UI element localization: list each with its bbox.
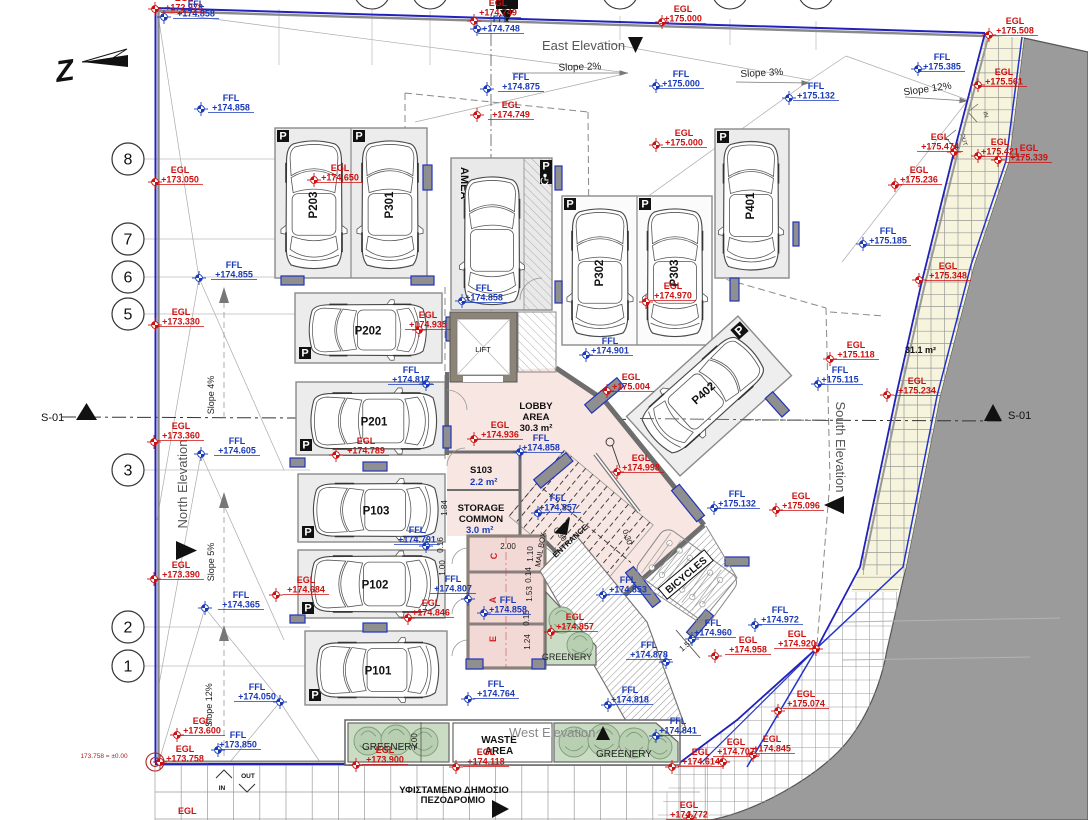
svg-text:+173.758: +173.758 [166, 754, 204, 764]
svg-text:+174.365: +174.365 [222, 600, 260, 610]
svg-text:P401: P401 [745, 192, 757, 219]
svg-text:FFL: FFL [476, 283, 493, 293]
svg-text:2: 2 [124, 620, 133, 637]
svg-text:ΠΕΖΟΔΡΟΜΙΟ: ΠΕΖΟΔΡΟΜΙΟ [421, 795, 486, 806]
svg-text:EGL: EGL [910, 165, 929, 175]
svg-text:+174.920: +174.920 [778, 639, 816, 649]
svg-text:P: P [302, 440, 309, 452]
svg-text:EGL: EGL [178, 806, 197, 816]
svg-text:South Elevation: South Elevation [833, 401, 848, 492]
svg-text:+173.900: +173.900 [366, 755, 404, 765]
svg-text:FFL: FFL [488, 679, 505, 689]
svg-text:EGL: EGL [172, 421, 191, 431]
svg-text:Slope 2%: Slope 2% [558, 61, 601, 73]
svg-text:1.53: 1.53 [525, 586, 534, 602]
svg-text:P103: P103 [363, 506, 390, 518]
svg-text:+174.684: +174.684 [287, 585, 325, 595]
svg-text:S-01: S-01 [41, 412, 64, 424]
svg-text:+173.600: +173.600 [183, 726, 221, 736]
svg-text:+174.748: +174.748 [482, 24, 520, 34]
svg-text:E: E [488, 636, 498, 642]
svg-text:P101: P101 [365, 666, 392, 678]
svg-text:EGL: EGL [939, 261, 958, 271]
svg-text:+174.857: +174.857 [539, 503, 577, 513]
svg-text:+173.050: +173.050 [161, 175, 199, 185]
svg-text:173.758 = ±0.00: 173.758 = ±0.00 [80, 753, 128, 760]
svg-text:FFL: FFL [533, 433, 550, 443]
svg-text:P: P [542, 161, 549, 173]
svg-text:+174.857: +174.857 [556, 622, 594, 632]
svg-text:EGL: EGL [171, 165, 190, 175]
svg-text:P: P [566, 199, 573, 211]
svg-text:+173.360: +173.360 [162, 431, 200, 441]
svg-text:2.00: 2.00 [500, 542, 516, 551]
svg-text:+175.004: +175.004 [612, 382, 650, 392]
svg-text:+174.807: +174.807 [434, 584, 472, 594]
svg-text:P202: P202 [355, 326, 382, 338]
svg-text:+174.614: +174.614 [682, 757, 720, 767]
svg-text:COMMON: COMMON [459, 514, 503, 525]
svg-text:+174.050: +174.050 [238, 692, 276, 702]
svg-text:+175.118: +175.118 [837, 350, 874, 360]
svg-text:+175.236: +175.236 [900, 175, 938, 185]
svg-text:FFL: FFL [934, 52, 951, 62]
svg-text:+174.858: +174.858 [212, 103, 250, 113]
svg-text:FFL: FFL [832, 365, 849, 375]
svg-text:EGL: EGL [931, 132, 950, 142]
svg-text:+174.858: +174.858 [522, 443, 560, 453]
svg-text:LIFT: LIFT [475, 345, 491, 354]
svg-text:S103: S103 [470, 465, 492, 476]
svg-text:+174.845: +174.845 [753, 744, 791, 754]
svg-text:FFL: FFL [622, 685, 639, 695]
svg-text:+174.855: +174.855 [215, 270, 253, 280]
svg-text:OUT: OUT [241, 773, 255, 780]
svg-text:FFL: FFL [729, 489, 746, 499]
svg-text:EGL: EGL [995, 67, 1014, 77]
svg-text:+174.858: +174.858 [489, 605, 527, 615]
svg-text:+175.385: +175.385 [923, 62, 961, 72]
svg-text:IN: IN [219, 785, 226, 792]
svg-text:+174.791: +174.791 [398, 535, 436, 545]
svg-text:+174.817: +174.817 [392, 375, 430, 385]
svg-text:P: P [301, 348, 308, 360]
svg-text:30.3 m²: 30.3 m² [520, 423, 553, 434]
svg-text:+173.390: +173.390 [162, 570, 200, 580]
svg-text:3: 3 [124, 463, 133, 480]
svg-text:+174.841: +174.841 [659, 726, 697, 736]
svg-text:EGL: EGL [357, 436, 376, 446]
svg-text:+174.936: +174.936 [481, 430, 519, 440]
svg-text:P: P [304, 603, 311, 615]
svg-text:1.24: 1.24 [523, 634, 532, 650]
svg-text:+175.000: +175.000 [665, 138, 703, 148]
svg-text:+174.972: +174.972 [761, 615, 799, 625]
svg-text:+174.846: +174.846 [412, 608, 450, 618]
svg-text:P: P [641, 199, 648, 211]
svg-text:1: 1 [124, 659, 133, 676]
svg-text:+174.858: +174.858 [465, 293, 503, 303]
svg-text:EGL: EGL [847, 340, 866, 350]
svg-text:East Elevation: East Elevation [542, 38, 625, 53]
svg-text:EGL: EGL [1020, 143, 1039, 153]
svg-text:+174.772: +174.772 [670, 810, 708, 820]
svg-text:EGL: EGL [632, 453, 651, 463]
svg-text:FFL: FFL [233, 590, 250, 600]
svg-text:1.84: 1.84 [440, 500, 449, 516]
svg-text:EGL: EGL [172, 560, 191, 570]
svg-text:GREENERY: GREENERY [542, 652, 592, 662]
svg-text:+174.858: +174.858 [177, 9, 215, 19]
svg-text:EGL: EGL [176, 744, 195, 754]
svg-text:P102: P102 [362, 580, 389, 592]
svg-text:+175.096: +175.096 [782, 501, 820, 511]
svg-text:FFL: FFL [500, 595, 517, 605]
svg-text:+175.348: +175.348 [929, 271, 967, 281]
svg-text:FFL: FFL [229, 436, 246, 446]
svg-text:+174.818: +174.818 [611, 695, 649, 705]
svg-text:EGL: EGL [664, 281, 683, 291]
svg-text:EGL: EGL [727, 737, 746, 747]
svg-text:EGL: EGL [1006, 16, 1025, 26]
svg-text:+175.074: +175.074 [787, 699, 825, 709]
svg-text:P301: P301 [384, 191, 396, 218]
svg-text:P201: P201 [361, 417, 388, 429]
svg-text:FFL: FFL [620, 575, 637, 585]
svg-text:EGL: EGL [331, 163, 350, 173]
svg-text:EGL: EGL [908, 376, 927, 386]
svg-text:FFL: FFL [445, 574, 462, 584]
svg-text:5: 5 [124, 307, 133, 324]
svg-text:+175.000: +175.000 [662, 79, 700, 89]
svg-text:AREA: AREA [523, 412, 550, 423]
svg-text:FFL: FFL [673, 69, 690, 79]
svg-text:FFL: FFL [409, 525, 426, 535]
svg-text:2.00: 2.00 [410, 733, 419, 749]
svg-text:+174.875: +174.875 [502, 82, 540, 92]
svg-text:FFL: FFL [550, 493, 567, 503]
svg-text:FFL: FFL [230, 730, 247, 740]
svg-text:6: 6 [124, 270, 133, 287]
svg-text:A: A [488, 596, 498, 603]
svg-text:+174.749: +174.749 [492, 110, 530, 120]
svg-text:LOBBY: LOBBY [519, 401, 553, 412]
svg-text:EGL: EGL [675, 128, 694, 138]
svg-text:2.2 m²: 2.2 m² [470, 477, 497, 488]
svg-text:7: 7 [124, 232, 133, 249]
svg-text:+175.000: +175.000 [664, 14, 702, 24]
svg-text:+174.764: +174.764 [477, 689, 515, 699]
svg-text:+175.339: +175.339 [1010, 153, 1048, 163]
svg-text:+174.901: +174.901 [591, 346, 629, 356]
svg-text:EGL: EGL [491, 420, 510, 430]
svg-text:STORAGE: STORAGE [458, 503, 505, 514]
svg-text:+174.853: +174.853 [609, 585, 647, 595]
svg-text:0.14: 0.14 [524, 567, 533, 583]
svg-text:+174.970: +174.970 [654, 291, 692, 301]
svg-text:EGL: EGL [422, 598, 441, 608]
svg-text:EGL: EGL [792, 491, 811, 501]
svg-text:FFL: FFL [226, 260, 243, 270]
svg-text:EGL: EGL [622, 372, 641, 382]
svg-text:EGL: EGL [674, 4, 693, 14]
svg-text:+174.960: +174.960 [694, 628, 732, 638]
svg-text:EGL: EGL [376, 745, 395, 755]
svg-text:C: C [489, 552, 499, 559]
svg-text:+175.185: +175.185 [869, 236, 907, 246]
svg-text:Slope 5%: Slope 5% [206, 543, 216, 582]
svg-text:EGL: EGL [763, 734, 782, 744]
svg-text:FFL: FFL [513, 72, 530, 82]
svg-text:+174.650: +174.650 [321, 173, 359, 183]
svg-text:S-01: S-01 [1008, 410, 1031, 422]
svg-text:EGL: EGL [172, 307, 191, 317]
svg-text:EGL: EGL [680, 800, 699, 810]
svg-text:Slope 3%: Slope 3% [740, 67, 783, 80]
svg-text:31.1 m²: 31.1 m² [905, 345, 936, 355]
svg-text:+174.789: +174.789 [347, 446, 385, 456]
svg-text:EGL: EGL [788, 629, 807, 639]
svg-text:EGL: EGL [477, 747, 496, 757]
svg-text:EGL: EGL [297, 575, 316, 585]
svg-text:FFL: FFL [249, 682, 266, 692]
svg-text:P302: P302 [594, 260, 606, 287]
svg-text:EGL: EGL [502, 100, 521, 110]
svg-text:P: P [304, 527, 311, 539]
svg-text:EGL: EGL [991, 137, 1010, 147]
svg-text:+174.878: +174.878 [630, 650, 668, 660]
svg-text:+175.132: +175.132 [797, 91, 835, 101]
svg-text:+175.508: +175.508 [996, 26, 1034, 36]
svg-text:FFL: FFL [880, 226, 897, 236]
svg-text:FFL: FFL [223, 93, 240, 103]
svg-text:+175.132: +175.132 [718, 499, 756, 509]
svg-text:Slope 4%: Slope 4% [206, 376, 216, 415]
svg-text:P: P [311, 690, 318, 702]
svg-text:+174.998: +174.998 [622, 463, 660, 473]
svg-text:FFL: FFL [403, 365, 420, 375]
svg-text:FFL: FFL [602, 336, 619, 346]
svg-text:EGL: EGL [692, 747, 711, 757]
svg-text:+175.474: +175.474 [921, 142, 959, 152]
svg-text:+173.850: +173.850 [219, 740, 257, 750]
svg-text:+174.958: +174.958 [729, 645, 767, 655]
svg-text:+175.115: +175.115 [821, 375, 858, 385]
svg-text:+173.330: +173.330 [162, 317, 200, 327]
svg-text:FFL: FFL [641, 640, 658, 650]
svg-text:+174.118: +174.118 [467, 757, 504, 767]
svg-text:EGL: EGL [739, 635, 758, 645]
svg-text:P203: P203 [308, 192, 320, 219]
svg-text:North Elevation: North Elevation [175, 440, 190, 529]
svg-text:3.0 m²: 3.0 m² [466, 525, 493, 536]
svg-text:8: 8 [124, 152, 133, 169]
svg-text:+175.561: +175.561 [985, 77, 1023, 87]
svg-text:EGL: EGL [797, 689, 816, 699]
svg-text:FFL: FFL [670, 716, 687, 726]
svg-text:FFL: FFL [772, 605, 789, 615]
svg-text:FFL: FFL [705, 618, 722, 628]
svg-text:P: P [719, 132, 726, 144]
svg-text:+174.935: +174.935 [409, 320, 447, 330]
svg-text:West Elevation: West Elevation [509, 725, 595, 740]
svg-text:GREENERY: GREENERY [596, 749, 652, 760]
svg-text:+174.605: +174.605 [218, 446, 256, 456]
svg-text:FFL: FFL [493, 14, 510, 24]
svg-text:EGL: EGL [193, 716, 212, 726]
svg-text:EGL: EGL [566, 612, 585, 622]
svg-text:FFL: FFL [808, 81, 825, 91]
svg-text:+175.234: +175.234 [898, 386, 936, 396]
svg-text:P: P [355, 131, 362, 143]
svg-text:P: P [279, 131, 286, 143]
svg-text:EGL: EGL [419, 310, 438, 320]
